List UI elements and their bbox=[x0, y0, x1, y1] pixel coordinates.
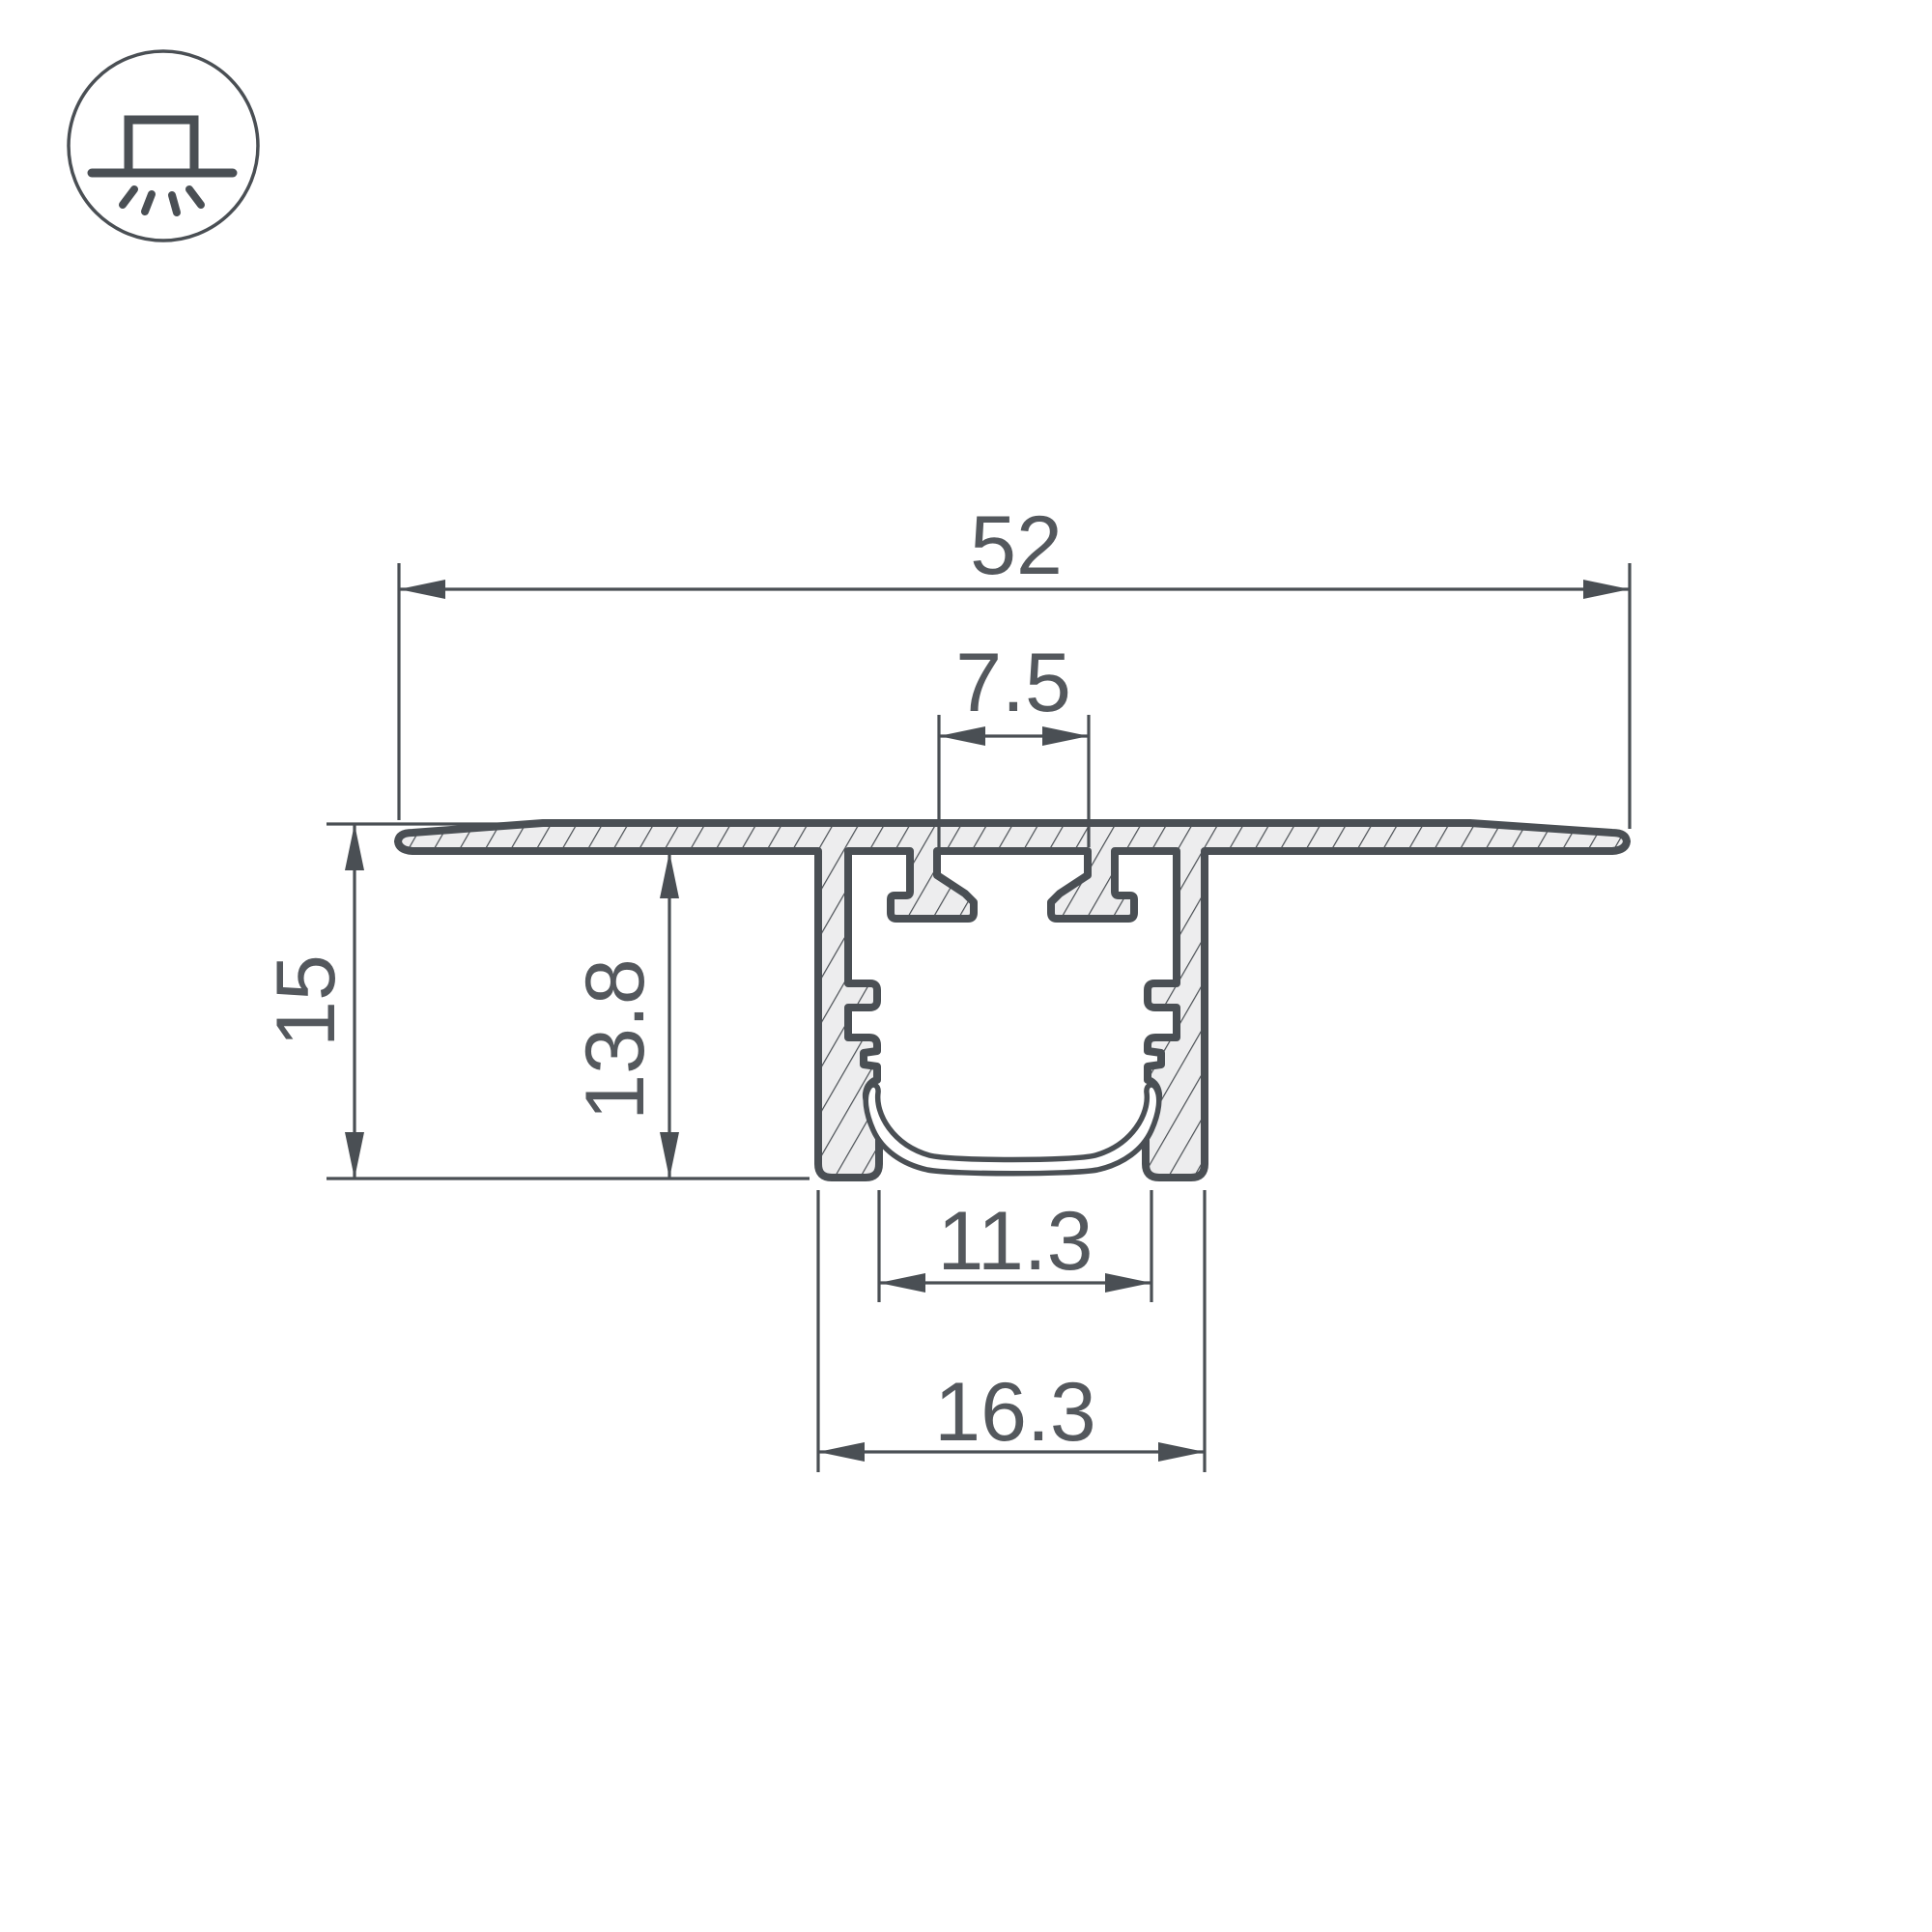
arrow-down-icon bbox=[345, 1132, 364, 1179]
dimension-inner-height: 13.8 bbox=[569, 852, 679, 1179]
arrow-down-icon bbox=[660, 1132, 679, 1179]
dim-label-flange-width: 52 bbox=[970, 499, 1063, 592]
arrow-right-icon bbox=[1583, 580, 1630, 599]
arrow-right-icon bbox=[1042, 726, 1089, 746]
arrow-left-icon bbox=[879, 1273, 925, 1293]
icon-fixture-box bbox=[128, 120, 194, 173]
arrow-left-icon bbox=[818, 1442, 865, 1462]
recessed-mount-light-icon bbox=[69, 51, 258, 241]
arrow-up-icon bbox=[345, 824, 364, 870]
dim-label-inner-width: 11.3 bbox=[938, 1195, 1094, 1288]
icon-light-rays bbox=[123, 189, 201, 213]
diffuser bbox=[866, 1085, 1158, 1174]
dimension-inner-width: 11.3 bbox=[879, 1190, 1151, 1302]
arrow-left-icon bbox=[939, 726, 985, 746]
arrow-right-icon bbox=[1105, 1273, 1151, 1293]
arrow-right-icon bbox=[1158, 1442, 1205, 1462]
icon-circle bbox=[69, 51, 258, 241]
drawing-canvas: 52 7.5 15 13.8 11.3 bbox=[0, 0, 1932, 1932]
arrow-left-icon bbox=[399, 580, 445, 599]
dimension-total-height: 15 bbox=[260, 824, 810, 1179]
arrow-up-icon bbox=[660, 852, 679, 898]
dim-label-outer-width: 16.3 bbox=[934, 1366, 1095, 1459]
technical-drawing: 52 7.5 15 13.8 11.3 bbox=[0, 0, 1932, 1932]
dimension-top-slot-width: 7.5 bbox=[939, 637, 1089, 847]
dim-label-total-height: 15 bbox=[260, 954, 353, 1047]
dim-label-inner-height: 13.8 bbox=[569, 958, 662, 1120]
dim-label-top-slot: 7.5 bbox=[955, 637, 1071, 729]
